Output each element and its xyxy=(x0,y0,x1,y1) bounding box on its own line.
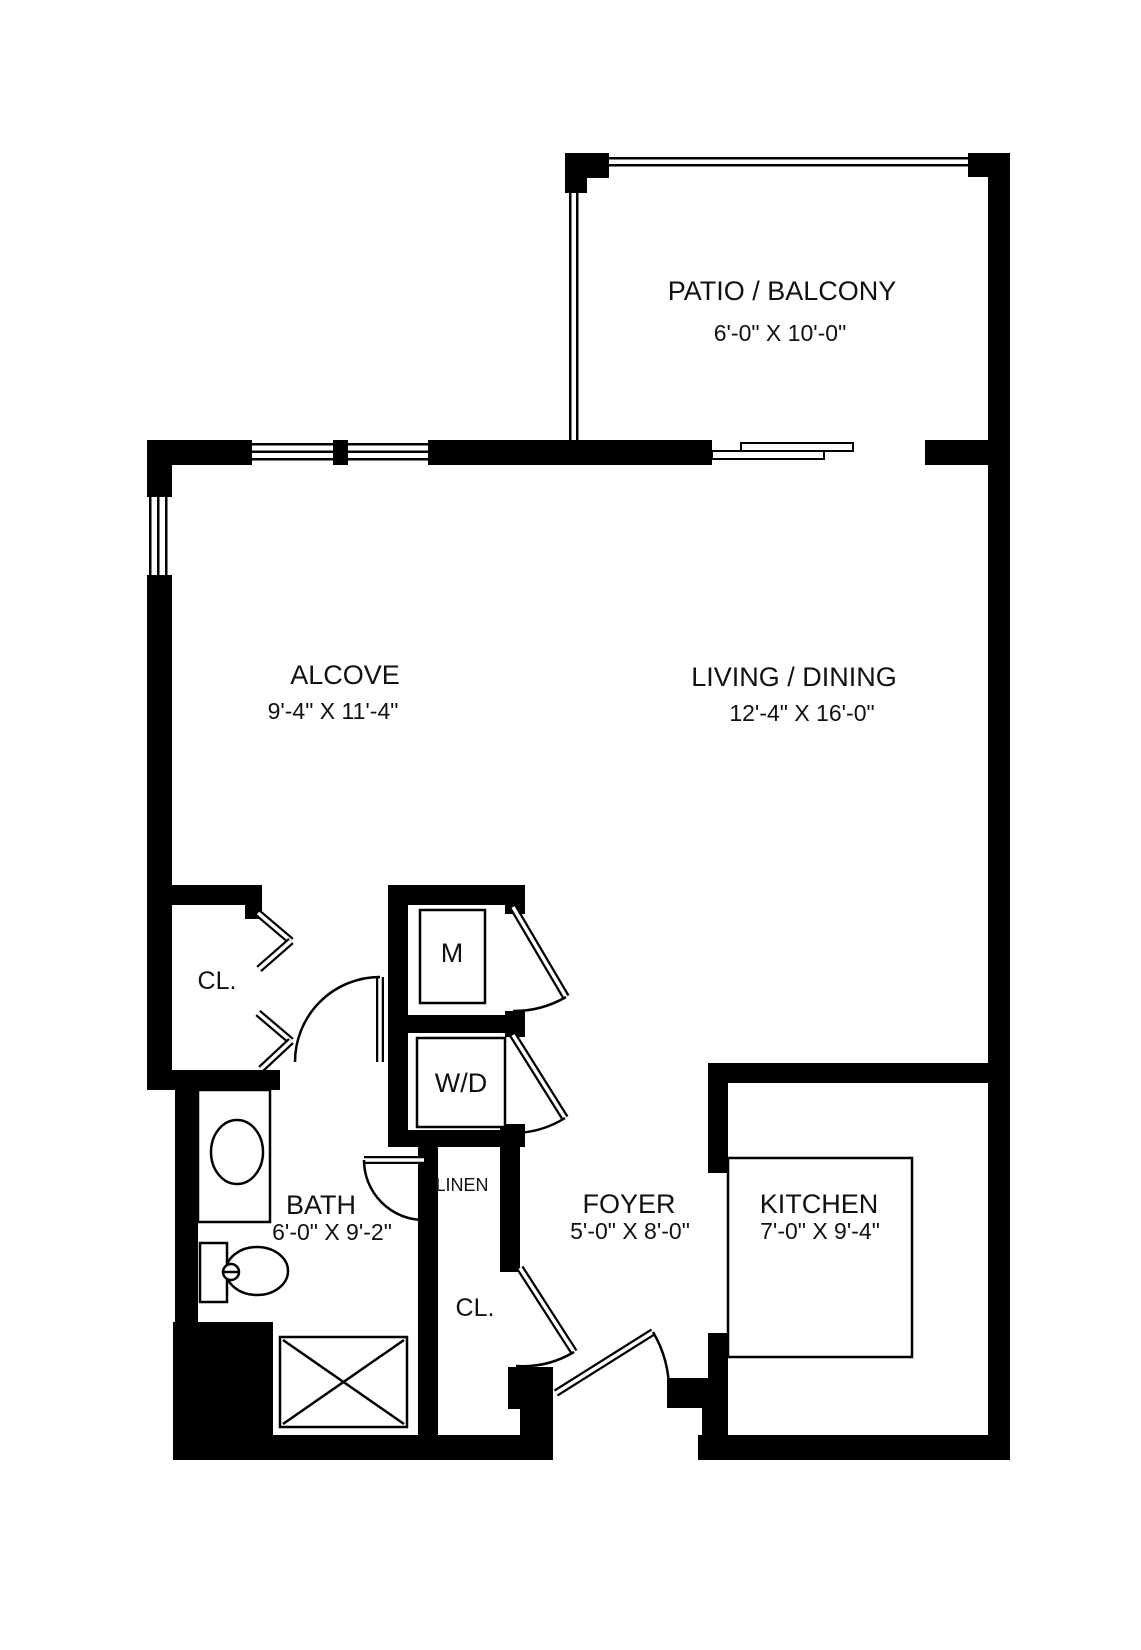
mech-wd-divider-wall xyxy=(405,1015,507,1033)
top-window-2 xyxy=(348,443,428,461)
alcove-closet-top-wall xyxy=(170,885,262,905)
right-wall xyxy=(988,153,1010,1460)
patio-label: PATIO / BALCONY xyxy=(668,276,897,306)
foyer-closet-door xyxy=(516,1268,574,1366)
washer-dryer-label: W/D xyxy=(435,1068,487,1098)
living-dining-dims: 12'-4" X 16'-0" xyxy=(729,700,874,726)
patio-corner-post-left-lower xyxy=(565,153,587,193)
alcove-dims: 9'-4" X 11'-4" xyxy=(268,698,399,724)
kitchen-dims: 7'-0" X 9'-4" xyxy=(760,1218,880,1244)
top-wall-mid xyxy=(428,440,712,465)
bottom-left-wall-mass xyxy=(173,1322,273,1437)
patio-dims: 6'-0" X 10'-0" xyxy=(714,320,847,346)
divider-post xyxy=(505,1011,525,1037)
patio-railing-top-line2 xyxy=(607,164,968,167)
foyer-closet-label: CL. xyxy=(456,1294,495,1322)
mechanical-closet-door xyxy=(513,907,566,1011)
kitchen-left-wall-lower xyxy=(708,1333,728,1437)
shower xyxy=(280,1337,407,1427)
entry-post-left-lower xyxy=(520,1400,553,1437)
alcove-closet-label: CL. xyxy=(198,967,237,995)
alcove-closet-bottom-wall xyxy=(147,1070,280,1090)
wd-bottom-wall xyxy=(400,1130,507,1147)
living-dining-label: LIVING / DINING xyxy=(691,662,897,692)
top-wall-right xyxy=(925,440,1010,465)
kitchen-top-wall xyxy=(708,1063,1010,1083)
bath-dims: 6'-0" X 9'-2" xyxy=(272,1219,392,1245)
patio-railing-top-line1 xyxy=(607,157,968,160)
foyer-label: FOYER xyxy=(582,1189,675,1219)
mech-closet-top-wall xyxy=(388,885,525,905)
foyer-dims: 5'-0" X 8'-0" xyxy=(570,1218,690,1244)
patio-railing-left-line2 xyxy=(576,193,579,442)
sliding-door-panel-right xyxy=(741,443,853,451)
kitchen-label: KITCHEN xyxy=(760,1189,879,1219)
sliding-patio-door xyxy=(712,443,853,459)
left-window xyxy=(149,497,168,575)
linen-closet-label: LINEN xyxy=(435,1175,488,1195)
laundry-closet-door xyxy=(513,1035,565,1133)
kitchen-left-wall-upper xyxy=(708,1063,728,1173)
alcove-closet-bifold-door xyxy=(258,913,291,1069)
window-mullion xyxy=(333,440,348,465)
patio-railing-left-line1 xyxy=(569,193,572,442)
linen-foyer-wall xyxy=(500,1126,520,1272)
bath-label: BATH xyxy=(286,1190,356,1220)
top-window-1 xyxy=(252,443,333,461)
mechanical-label: M xyxy=(441,938,464,968)
left-wall xyxy=(147,575,172,1090)
sliding-door-panel-left xyxy=(712,451,824,459)
bath-hall-door xyxy=(295,977,380,1062)
floor-plan-svg: PATIO / BALCONY 6'-0" X 10'-0" ALCOVE 9'… xyxy=(0,0,1141,1650)
fixtures xyxy=(198,910,912,1427)
bottom-wall-left xyxy=(173,1435,553,1460)
bath-sink xyxy=(211,1120,263,1184)
entry-door xyxy=(556,1332,669,1393)
top-left-corner xyxy=(147,440,172,497)
floor-plan-page: PATIO / BALCONY 6'-0" X 10'-0" ALCOVE 9'… xyxy=(0,0,1141,1650)
kitchen-counter xyxy=(728,1158,912,1357)
linen-closet-door xyxy=(364,1160,424,1220)
bath-left-wall xyxy=(175,1090,198,1337)
alcove-label: ALCOVE xyxy=(290,660,400,690)
bottom-wall-right xyxy=(698,1435,1010,1460)
